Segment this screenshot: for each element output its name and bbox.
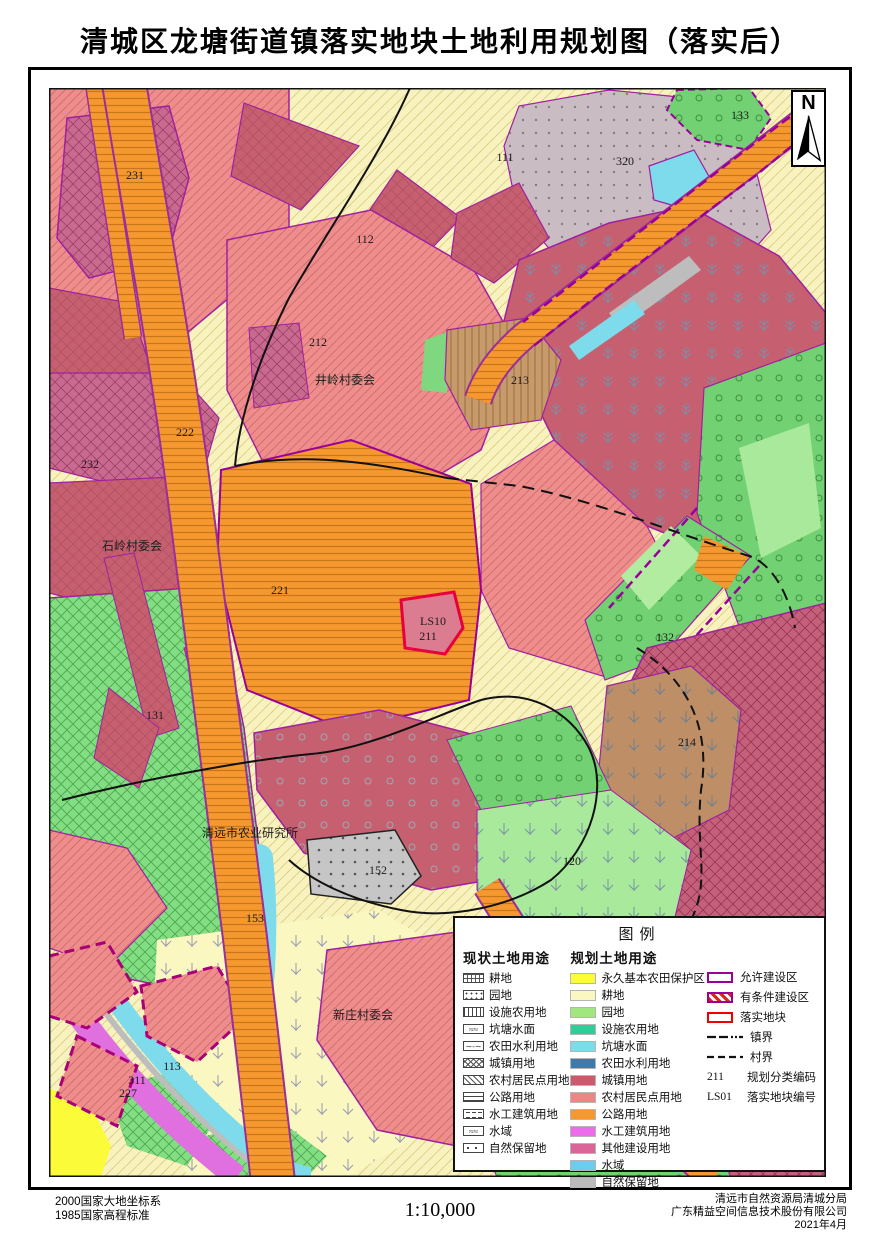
map-label: 120 (563, 854, 581, 868)
legend-item-label: 园地 (601, 1004, 624, 1020)
hdash-swatch (463, 1109, 484, 1119)
color-swatch (570, 1007, 596, 1018)
legend-item-label: 设施农用地 (601, 1021, 659, 1037)
waves-swatch: ≈≈ (463, 1024, 484, 1034)
legend-planned-list: 永久基本农田保护区耕地园地设施农用地坑塘水面农田水利用地城镇用地农村居民点用地公… (570, 970, 707, 1190)
color-swatch (570, 1177, 596, 1188)
color-swatch (570, 973, 596, 984)
map-label: 133 (731, 108, 749, 122)
legend-item-label: 城镇用地 (601, 1072, 647, 1088)
legend-item: 自然保留地 (570, 1174, 707, 1190)
map-label: 井岭村委会 (315, 373, 375, 387)
legend-item-label: 镇界 (750, 1029, 773, 1045)
legend-item: 落实地块 (707, 1009, 816, 1025)
color-swatch (570, 990, 596, 1001)
map-label: 132 (656, 630, 674, 644)
legend-item-label: 自然保留地 (489, 1140, 547, 1156)
legend-item-label: 公路用地 (489, 1089, 535, 1105)
legend-item-label: 坑塘水面 (601, 1038, 647, 1054)
legend-item-label: 农村居民点用地 (489, 1072, 570, 1088)
plus-swatch (463, 973, 484, 983)
legend-item-label: 水域 (489, 1123, 512, 1139)
map-label: LS10 (420, 614, 446, 628)
code-label: 规划分类编码 (747, 1069, 816, 1085)
legend-codes-list: 211规划分类编码LS01落实地块编号 (707, 1069, 816, 1105)
diag-swatch (463, 1075, 484, 1085)
box-purple-swatch (707, 972, 733, 983)
legend-item-label: 设施农用地 (489, 1004, 547, 1020)
map-label: 112 (356, 232, 374, 246)
legend-title: 图例 (463, 923, 816, 944)
legend-item: 城镇用地 (570, 1072, 707, 1088)
hlines-swatch (463, 1092, 484, 1102)
legend-overlay-list: 允许建设区有条件建设区落实地块镇界村界 (707, 969, 816, 1065)
legend-item-label: 水工建筑用地 (489, 1106, 558, 1122)
legend-item-label: 农田水利用地 (489, 1038, 558, 1054)
legend-item: 其他建设用地 (570, 1140, 707, 1156)
compass-icon (793, 114, 824, 164)
village-boundary-swatch (707, 1053, 743, 1061)
map-label: 131 (146, 708, 164, 722)
legend-item: 坑塘水面 (570, 1038, 707, 1054)
code-value: LS01 (707, 1091, 735, 1103)
map-label: 213 (511, 373, 529, 387)
publisher-note: 清远市自然资源局清城分局 广东精益空间信息技术股份有限公司 2021年4月 (671, 1193, 847, 1233)
legend-item-label: 落实地块 (740, 1009, 786, 1025)
legend-item: ∼-∼农田水利用地 (463, 1038, 570, 1054)
map-label: 211 (419, 629, 437, 643)
color-swatch (570, 1160, 596, 1171)
legend-item: 镇界 (707, 1029, 816, 1045)
legend-item-label: 其他建设用地 (601, 1140, 670, 1156)
color-swatch (570, 1024, 596, 1035)
map-label: 113 (163, 1059, 181, 1073)
legend-item-label: 村界 (750, 1049, 773, 1065)
map-label: 311 (128, 1073, 146, 1087)
legend-item: 城镇用地 (463, 1055, 570, 1071)
map-label: 227 (119, 1086, 137, 1100)
legend-item-label: 有条件建设区 (740, 989, 809, 1005)
legend-item-label: 耕地 (601, 987, 624, 1003)
north-arrow: N (791, 90, 826, 167)
legend-current-header: 现状土地用途 (463, 947, 570, 967)
box-red-swatch (707, 1012, 733, 1023)
north-label: N (793, 92, 824, 114)
map-label: 214 (678, 735, 696, 749)
color-swatch (570, 1109, 596, 1120)
map-label: 153 (246, 911, 264, 925)
legend-item-label: 允许建设区 (740, 969, 798, 985)
legend-item-label: 城镇用地 (489, 1055, 535, 1071)
legend-item: 有条件建设区 (707, 989, 816, 1005)
legend-item: 设施农用地 (570, 1021, 707, 1037)
color-swatch (570, 1041, 596, 1052)
legend-item: 农田水利用地 (570, 1055, 707, 1071)
legend-planned-header: 规划土地用途 (570, 947, 707, 967)
publisher-line-3: 2021年4月 (671, 1219, 847, 1232)
color-swatch (570, 1126, 596, 1137)
vbars-swatch (463, 1007, 484, 1017)
legend-item: 自然保留地 (463, 1140, 570, 1156)
planning-map-page: { "page": { "title": "清城区龙塘街道镇落实地块土地利用规划… (0, 0, 880, 1243)
legend-item: 耕地 (463, 970, 570, 986)
legend-item-label: 自然保留地 (601, 1174, 659, 1190)
map-label: 320 (616, 154, 634, 168)
color-swatch (570, 1143, 596, 1154)
map-label: 清远市农业研究所 (202, 825, 298, 840)
dotsparse-swatch (463, 1143, 484, 1153)
legend-item: 公路用地 (570, 1106, 707, 1122)
publisher-line-2: 广东精益空间信息技术股份有限公司 (671, 1206, 847, 1219)
legend-item: 农村居民点用地 (570, 1089, 707, 1105)
xhatch-swatch (463, 1058, 484, 1068)
legend-item: 园地 (463, 987, 570, 1003)
legend-item: 允许建设区 (707, 969, 816, 985)
legend-item-label: 农田水利用地 (601, 1055, 670, 1071)
page-title: 清城区龙塘街道镇落实地块土地利用规划图（落实后） (0, 20, 880, 60)
town-boundary-swatch (707, 1033, 743, 1041)
box-hatch-swatch (707, 992, 733, 1003)
legend-code-item: LS01落实地块编号 (707, 1089, 816, 1105)
legend-item: ≈≈水域 (463, 1123, 570, 1139)
legend-item-label: 永久基本农田保护区 (601, 970, 705, 986)
legend-item: 村界 (707, 1049, 816, 1065)
map-label: 新庄村委会 (333, 1007, 393, 1022)
legend-item: 水工建筑用地 (463, 1106, 570, 1122)
map-area: 231111320133112212井岭村委会213222232石岭村委会221… (49, 88, 826, 1177)
legend-item: 农村居民点用地 (463, 1072, 570, 1088)
code-value: 211 (707, 1071, 735, 1083)
legend-item: 设施农用地 (463, 1004, 570, 1020)
legend-item: 水工建筑用地 (570, 1123, 707, 1139)
color-swatch (570, 1075, 596, 1086)
legend-item: 园地 (570, 1004, 707, 1020)
map-label: 152 (369, 863, 387, 877)
legend-item-label: 公路用地 (601, 1106, 647, 1122)
legend-current-list: 耕地园地设施农用地≈≈坑塘水面∼-∼农田水利用地城镇用地农村居民点用地公路用地水… (463, 970, 570, 1156)
legend-item-label: 水工建筑用地 (601, 1123, 670, 1139)
map-label: 221 (271, 583, 289, 597)
legend-panel: 图例 现状土地用途 耕地园地设施农用地≈≈坑塘水面∼-∼农田水利用地城镇用地农村… (453, 916, 826, 1172)
legend-item: 公路用地 (463, 1089, 570, 1105)
legend-code-item: 211规划分类编码 (707, 1069, 816, 1085)
wavedash-swatch: ∼-∼ (463, 1041, 484, 1051)
map-label: 111 (496, 150, 513, 164)
legend-item-label: 坑塘水面 (489, 1021, 535, 1037)
color-swatch (570, 1092, 596, 1103)
legend-item-label: 耕地 (489, 970, 512, 986)
legend-item-label: 水域 (601, 1157, 624, 1173)
map-label: 石岭村委会 (102, 539, 162, 553)
legend-item-label: 农村居民点用地 (601, 1089, 682, 1105)
dots2-swatch (463, 990, 484, 1000)
color-swatch (570, 1058, 596, 1069)
map-label: 232 (81, 457, 99, 471)
publisher-line-1: 清远市自然资源局清城分局 (671, 1193, 847, 1206)
map-label: 212 (309, 335, 327, 349)
waves-swatch: ≈≈ (463, 1126, 484, 1136)
map-label: 222 (176, 425, 194, 439)
legend-item: ≈≈坑塘水面 (463, 1021, 570, 1037)
legend-item: 水域 (570, 1157, 707, 1173)
map-label: 231 (126, 168, 144, 182)
code-label: 落实地块编号 (747, 1089, 816, 1105)
legend-item: 永久基本农田保护区 (570, 970, 707, 986)
legend-item: 耕地 (570, 987, 707, 1003)
legend-item-label: 园地 (489, 987, 512, 1003)
